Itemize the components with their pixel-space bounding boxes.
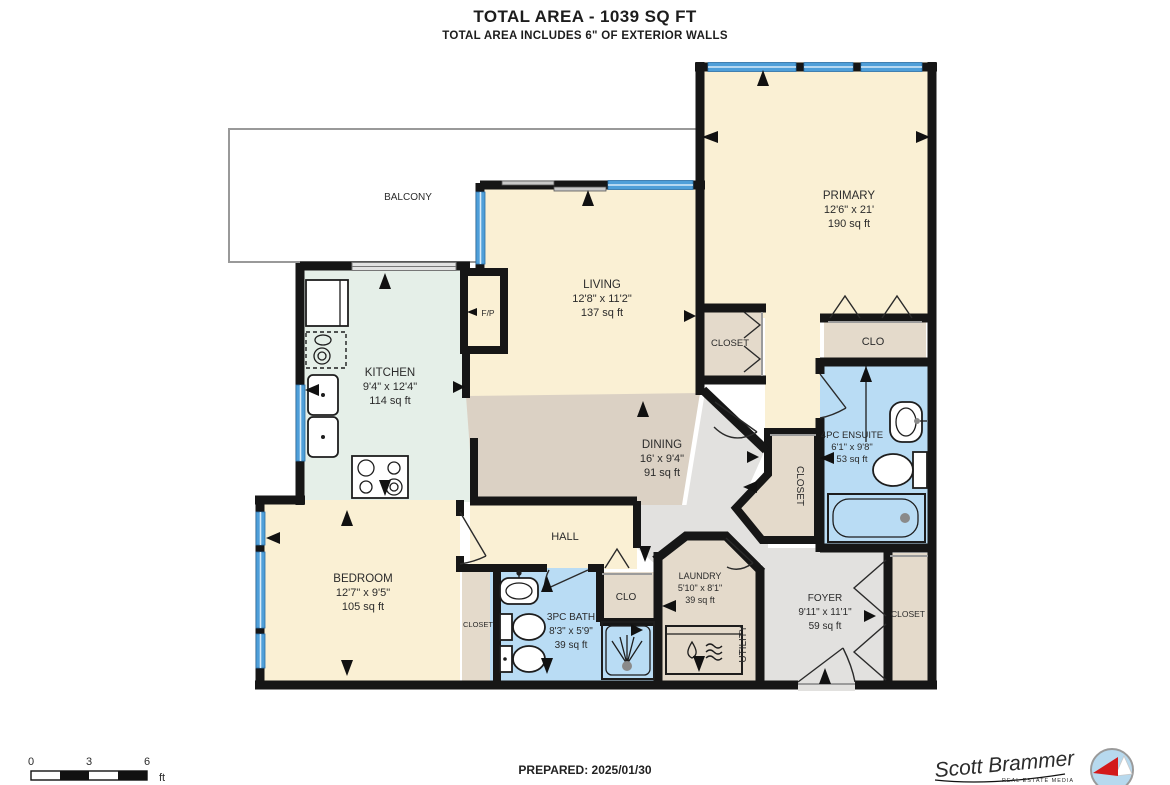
compass-logo (1091, 749, 1133, 785)
bath-label: 3PC BATH (547, 612, 595, 623)
dining-label: DINING (642, 439, 682, 451)
bath-dims: 8'3" x 5'9" (549, 626, 593, 637)
living-dims: 12'8" x 11'2" (572, 293, 632, 305)
foyer-closet-label: CLOSET (891, 609, 925, 619)
stove (352, 456, 408, 498)
living-area-label: 137 sq ft (581, 307, 623, 319)
laundry-dims: 5'10" x 8'1" (678, 583, 722, 593)
kitchen-area-label: 114 sq ft (369, 395, 410, 407)
fridge (306, 280, 348, 326)
primary-label: PRIMARY (823, 190, 876, 202)
primary-clo-label: CLO (862, 336, 885, 348)
floor-plan: BALCONY PRIMARY 12'6" x 21' 190 sq ft LI… (0, 0, 1170, 785)
laundry-label: LAUNDRY (679, 571, 722, 581)
ensuite-area-label: 53 sq ft (836, 454, 868, 465)
foyer-label: FOYER (808, 593, 842, 604)
bedroom-dims: 12'7" x 9'5" (336, 587, 390, 599)
ensuite-toilet (873, 452, 927, 488)
reachin-closet-label: CLOSET (711, 338, 749, 349)
kitchen-dims: 9'4" x 12'4" (363, 381, 417, 393)
primary-dims: 12'6" x 21' (824, 204, 874, 216)
utility-label: UTILITY (738, 625, 749, 663)
hall-label: HALL (551, 531, 579, 543)
balcony-label: BALCONY (384, 192, 432, 203)
laundry-area-label: 39 sq ft (685, 595, 715, 605)
fireplace-label: F/P (481, 308, 495, 318)
dining-dims: 16' x 9'4" (640, 453, 684, 465)
dining-area-label: 91 sq ft (644, 467, 680, 479)
balcony-slider-panel (502, 181, 554, 185)
room-fills (229, 62, 932, 685)
foyer-dims: 9'11" x 11'1" (798, 607, 852, 618)
living-label: LIVING (583, 279, 621, 291)
bath-area-label: 39 sq ft (555, 640, 588, 651)
kitchen-label: KITCHEN (365, 367, 415, 379)
brand-signature: Scott Brammer (934, 747, 1077, 782)
foyer-area-label: 59 sq ft (809, 621, 842, 632)
walkin-closet-label: CLOSET (794, 466, 805, 506)
bedroom-area-label: 105 sq ft (342, 601, 384, 613)
ensuite-dims: 6'1" x 9'8" (831, 442, 873, 453)
bedroom-closet-label: CLOSET (463, 620, 493, 629)
hall-clo-label: CLO (616, 592, 637, 603)
balcony-slider-panel (554, 187, 606, 191)
primary-area-label: 190 sq ft (828, 218, 870, 230)
bedroom-label: BEDROOM (333, 573, 392, 585)
brand-tagline: REAL ESTATE MEDIA (1002, 778, 1074, 784)
brand-mark: Scott Brammer REAL ESTATE MEDIA (930, 738, 1160, 785)
ensuite-label: 4PC ENSUITE (821, 430, 883, 441)
